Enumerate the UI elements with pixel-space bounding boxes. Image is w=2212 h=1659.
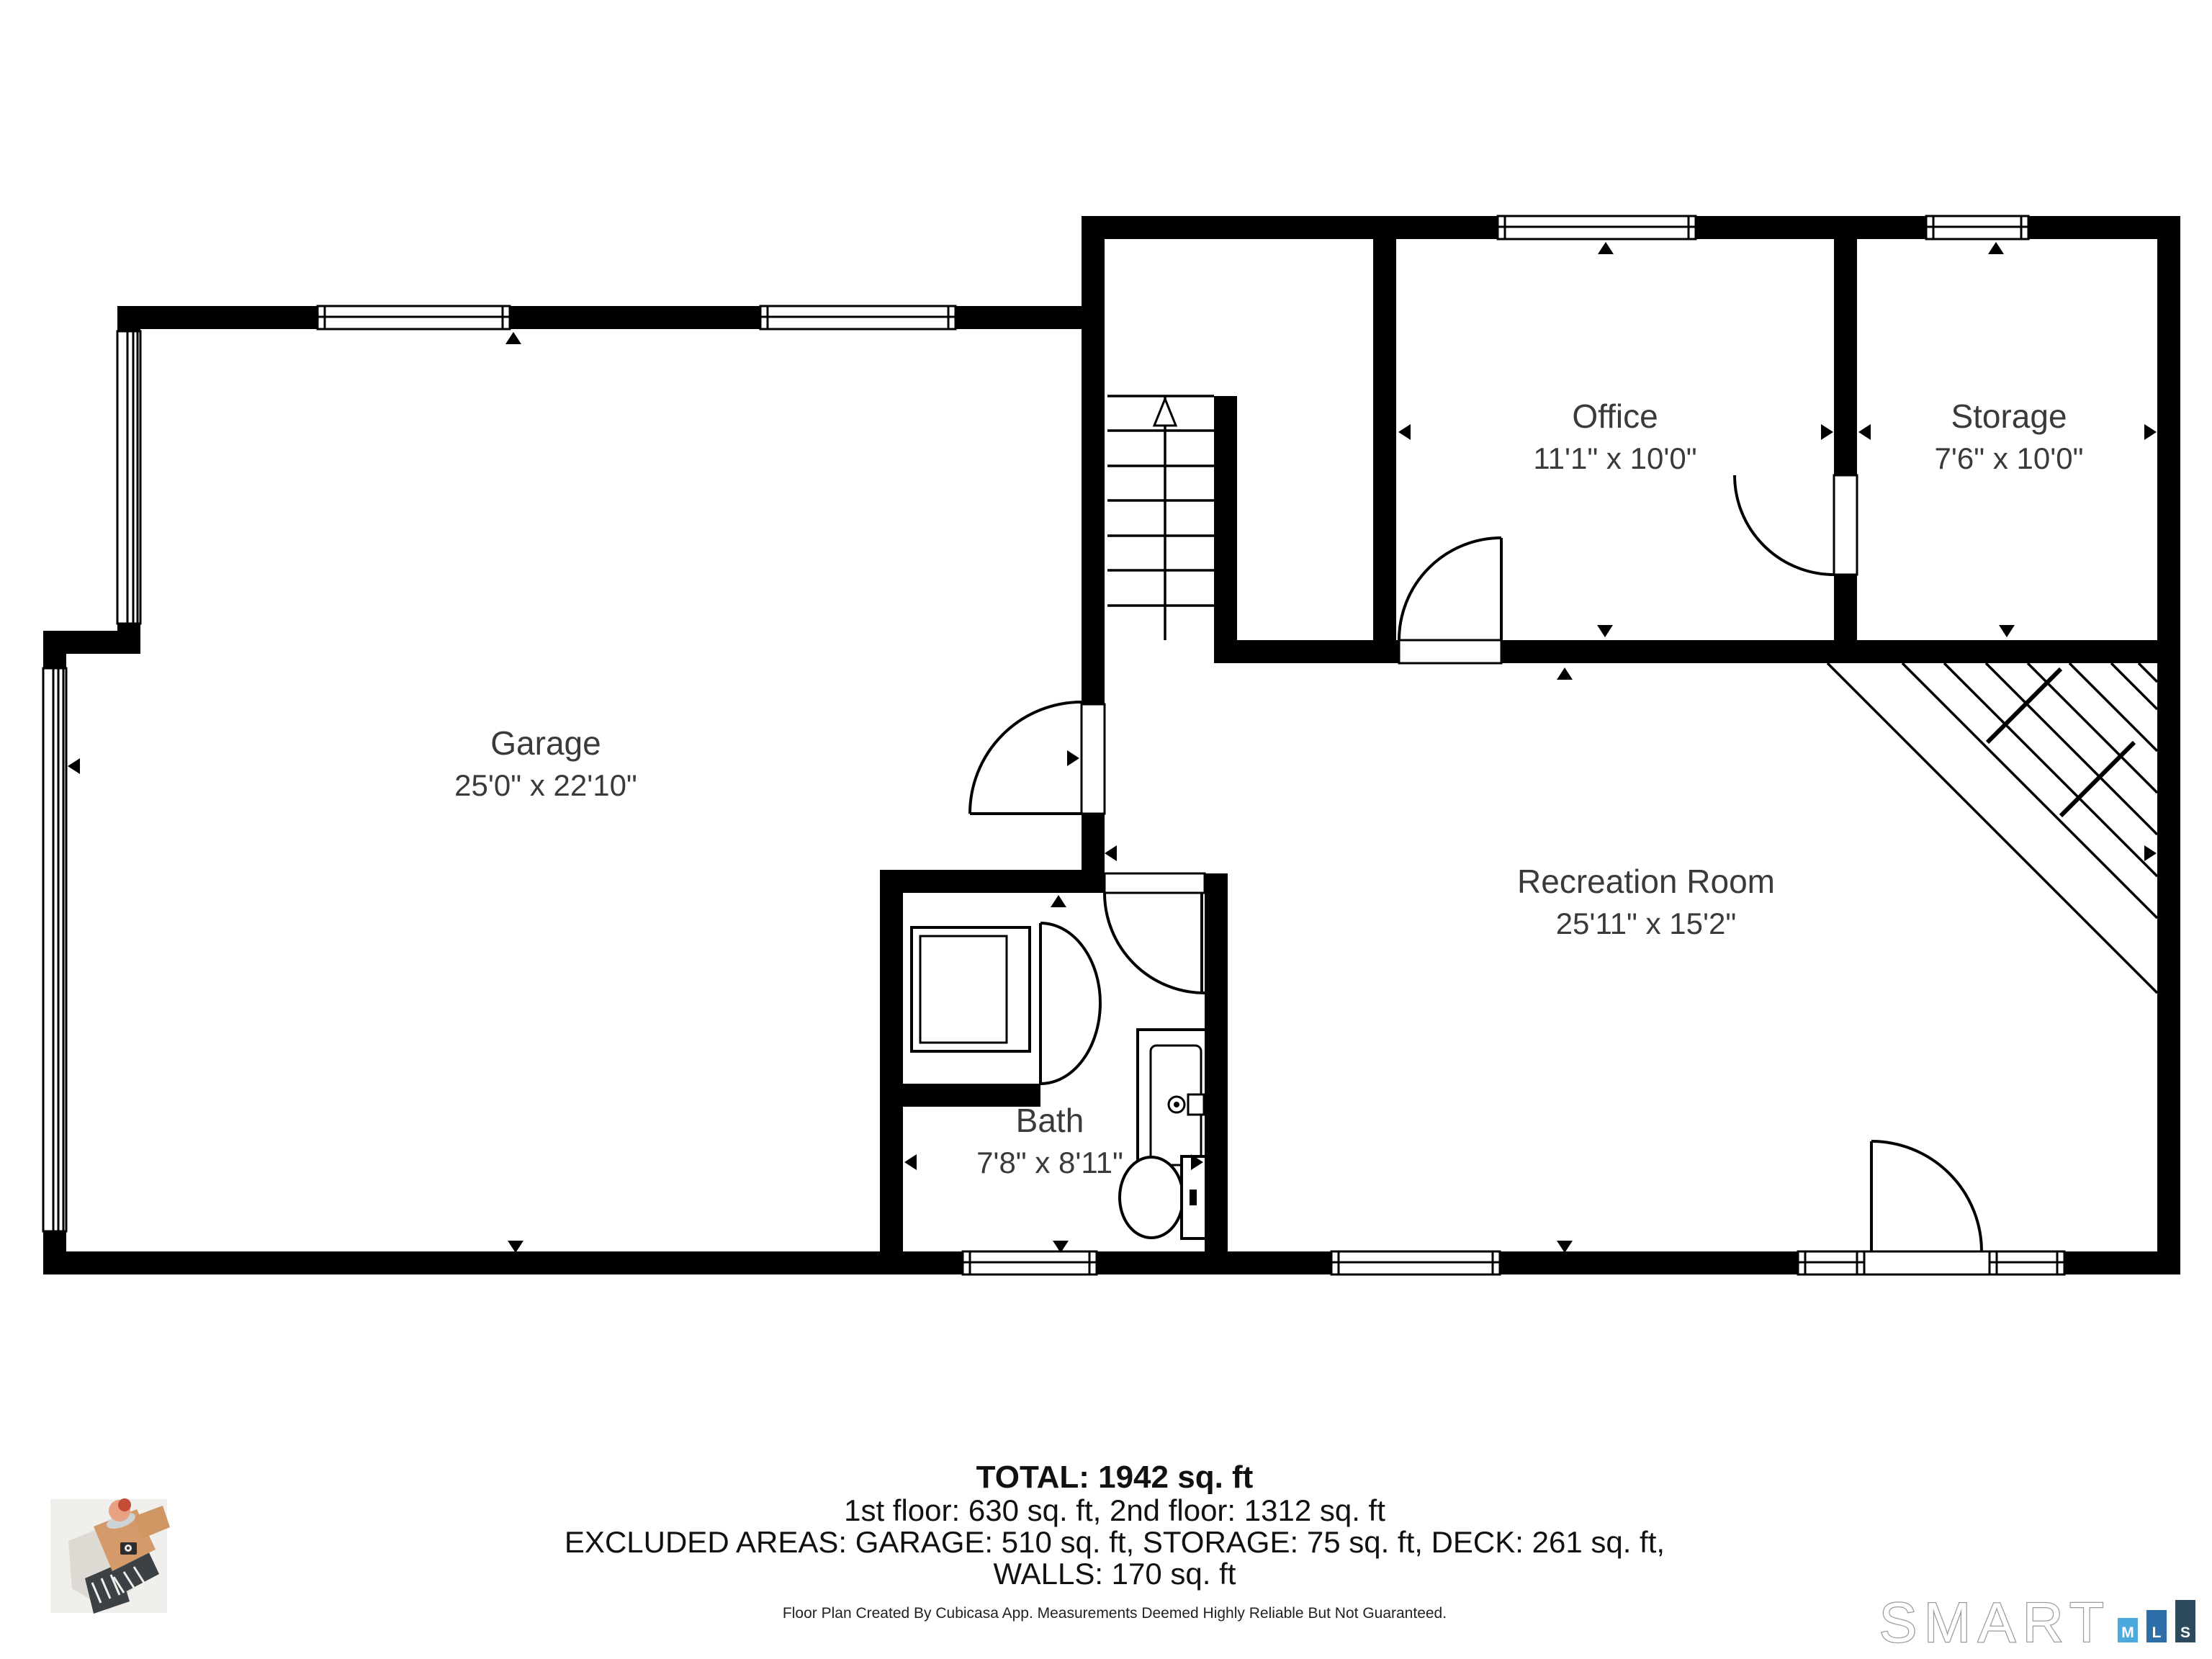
wall-hall-bottom-left [1214,640,1399,663]
walls-area-text: WALLS: 170 sq. ft [994,1557,1236,1591]
door-shower [1040,923,1100,1084]
floor-areas-text: 1st floor: 630 sq. ft, 2nd floor: 1312 s… [844,1493,1385,1527]
arrow-left-icon [1105,845,1117,861]
room-label-recroom: Recreation Room [1517,863,1775,900]
mls-letter-l: L [2152,1624,2162,1641]
staircase-hatch-understairs [1827,663,2157,993]
arrow-right-icon [1067,750,1079,766]
mls-letter-m: M [2121,1624,2134,1641]
walls [43,216,2180,1274]
floor-plan-drawing: Garage 25'0" x 22'10" Office 11'1" x 10'… [0,0,2212,1659]
wall-bath-top [880,870,1105,893]
window-bath-bottom [963,1251,1097,1274]
door-recroom-exterior [1864,1141,1990,1274]
room-dims-bath: 7'8" x 8'11" [976,1146,1123,1179]
wall-office-storage-upper [1834,239,1857,475]
arrow-right-icon [2144,845,2157,861]
area-summary: TOTAL: 1942 sq. ft 1st floor: 630 sq. ft… [565,1460,1665,1622]
excluded-areas-text: EXCLUDED AREAS: GARAGE: 510 sq. ft, STOR… [565,1525,1665,1559]
door-garage [970,702,1105,814]
room-dims-office: 11'1" x 10'0" [1533,441,1696,475]
room-label-storage: Storage [1951,397,2067,435]
window-recroom-bottom-3 [1990,1251,2064,1274]
door-office [1399,538,1501,663]
room-label-garage: Garage [490,724,601,762]
toilet-icon [1120,1156,1206,1238]
arrow-up-icon [1988,242,2004,254]
arrow-left-icon [1858,424,1871,440]
room-dims-garage: 25'0" x 22'10" [454,768,637,802]
room-dims-storage: 7'6" x 10'0" [1935,441,2084,475]
room-label-bath: Bath [1016,1102,1084,1139]
window-garage-top-2 [760,306,956,329]
wall-stair-right [1214,396,1237,663]
wall-right-outer [2157,216,2180,1274]
window-office [1498,216,1696,239]
arrow-down-icon [1597,625,1613,637]
arrow-down-icon [1999,625,2015,637]
bath-fixtures [912,927,1206,1238]
wall-bath-right [1205,873,1228,1274]
arrow-left-icon [1398,424,1411,440]
cubicasa-logo-icon [50,1498,170,1614]
staircase-up [1107,396,1214,640]
room-label-office: Office [1572,397,1658,435]
arrow-left-icon [68,758,80,774]
window-recroom-bottom-1 [1331,1251,1500,1274]
arrow-right-icon [2144,424,2157,440]
arrow-up-icon [505,332,521,344]
arrow-up-icon [1598,242,1614,254]
shower-icon [912,927,1030,1051]
window-garage-left [117,331,140,624]
arrow-down-icon [508,1241,523,1253]
smart-logo-text: SMART [1879,1591,2111,1654]
wall-office-left [1373,239,1396,640]
disclaimer-text: Floor Plan Created By Cubicasa App. Meas… [783,1605,1447,1622]
door-bath-entry [1105,873,1205,993]
window-left-lower [43,668,66,1231]
total-area-text: TOTAL: 1942 sq. ft [976,1460,1254,1495]
arrow-up-icon [1051,895,1066,907]
wall-hall-bottom-right [1501,640,2157,663]
room-dims-recroom: 25'11" x 15'2" [1556,907,1737,940]
arrow-down-icon [1557,1241,1573,1253]
floor-plan-page: Garage 25'0" x 22'10" Office 11'1" x 10'… [0,0,2212,1659]
window-storage [1926,216,2028,239]
stairs-up-arrow-icon [1154,399,1176,426]
window-garage-top-1 [318,306,510,329]
mls-letter-s: S [2180,1624,2190,1641]
arrow-left-icon [904,1154,917,1170]
window-recroom-bottom-2 [1798,1251,1864,1274]
wall-garage-hall-upper [1082,216,1105,704]
smart-mls-logo: SMART M L S [1879,1591,2195,1654]
wall-bath-left [880,870,903,1274]
door-storage [1735,475,1857,575]
arrow-up-icon [1557,667,1573,680]
wall-office-storage-lower [1834,575,1857,640]
arrow-right-icon [1821,424,1833,440]
